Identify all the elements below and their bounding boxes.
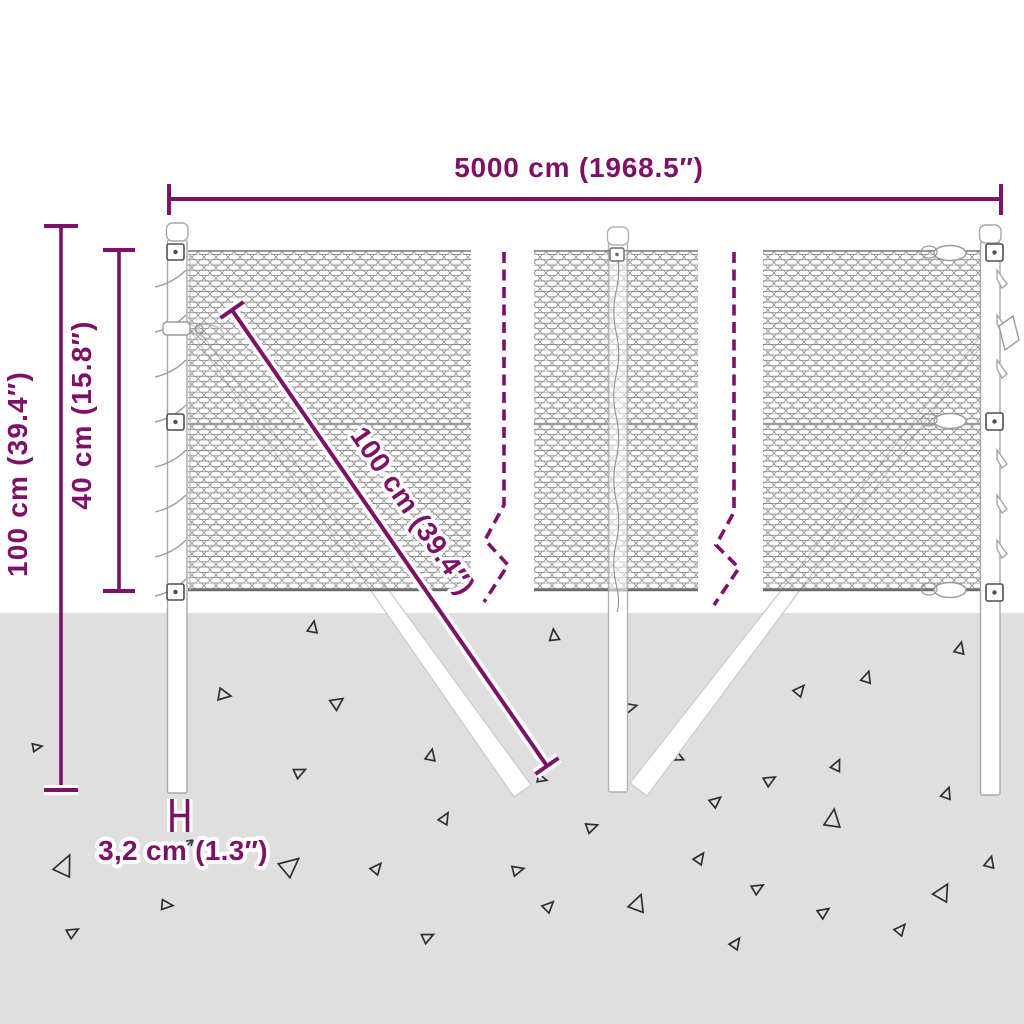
svg-text:5000 cm (1968.5″): 5000 cm (1968.5″) bbox=[454, 152, 704, 183]
svg-text:100 cm (39.4″): 100 cm (39.4″) bbox=[2, 371, 33, 577]
svg-text:3,2 cm (1.3″): 3,2 cm (1.3″) bbox=[98, 835, 268, 866]
svg-text:40 cm (15.8″): 40 cm (15.8″) bbox=[66, 320, 97, 509]
